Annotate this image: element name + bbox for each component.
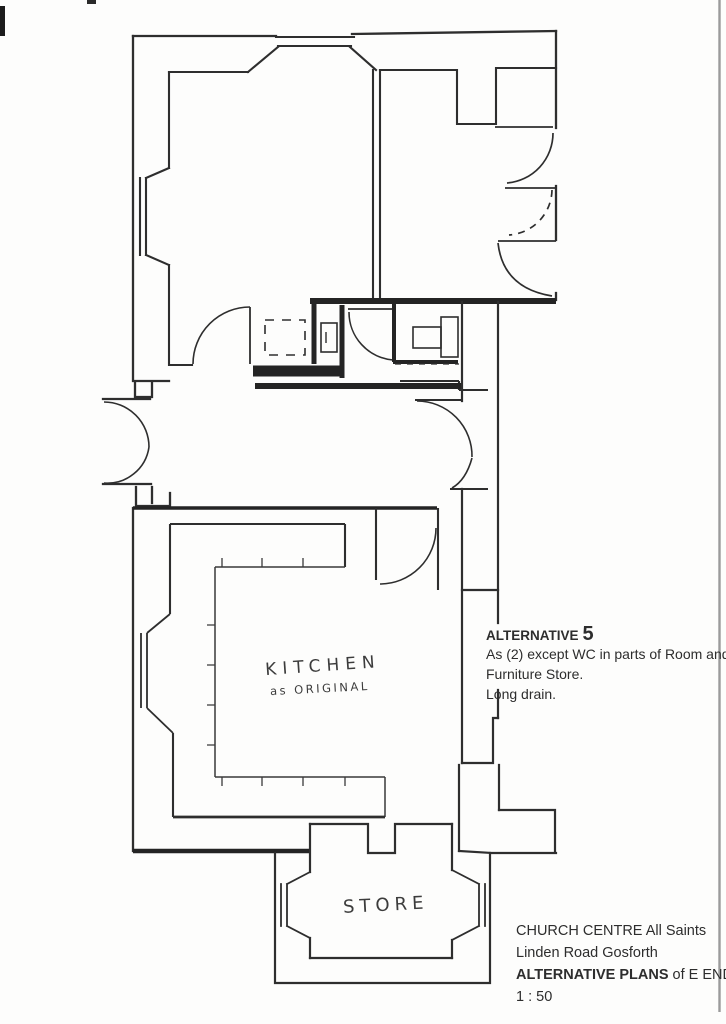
wall xyxy=(133,36,169,381)
alternative-heading-word: ALTERNATIVE xyxy=(486,628,579,643)
wall-chimney-recess xyxy=(380,68,556,124)
door-swing-arc xyxy=(193,307,250,364)
east-wall xyxy=(459,302,556,853)
wc-pan xyxy=(413,327,441,348)
door-jamb xyxy=(103,399,151,484)
wall xyxy=(170,524,345,567)
corridor-wc xyxy=(193,301,556,390)
door-swing-arc xyxy=(380,528,436,584)
scanned-floor-plan-sheet: ALTERNATIVE5 As (2) except WC in parts o… xyxy=(0,0,726,1024)
alternative-note-line: As (2) except WC in parts of Room and xyxy=(486,646,726,662)
window-left xyxy=(281,872,310,938)
double-door-arc xyxy=(452,458,472,488)
double-door-arc xyxy=(104,447,149,483)
window-splay xyxy=(248,47,376,72)
doors-top-right xyxy=(495,127,556,296)
scan-mark xyxy=(87,0,96,4)
top-room-walls xyxy=(140,37,556,365)
title-block-line3: ALTERNATIVE PLANS of E END xyxy=(516,967,726,983)
fixture-dashed xyxy=(265,320,305,355)
wall xyxy=(352,31,556,34)
double-door-arc xyxy=(417,401,472,457)
floor-plan-drawing: ALTERNATIVE5 As (2) except WC in parts o… xyxy=(0,0,726,1024)
wall-divider xyxy=(373,70,380,298)
door-swing-arc xyxy=(498,243,552,296)
title-block-line2: Linden Road Gosforth xyxy=(516,945,658,961)
wall-pier xyxy=(136,487,170,508)
wc-pan xyxy=(321,323,337,352)
window-left xyxy=(140,168,169,265)
annotation-texts: ALTERNATIVE5 As (2) except WC in parts o… xyxy=(265,623,726,1005)
kitchen-room xyxy=(133,508,438,851)
title-block-line3-bold: ALTERNATIVE PLANS xyxy=(516,967,669,983)
kitchen-label: KITCHEN xyxy=(265,652,382,680)
alternative-note-line: Long drain. xyxy=(486,686,556,702)
door-swing-arc xyxy=(507,133,553,183)
title-block-scale: 1 : 50 xyxy=(516,989,552,1005)
title-block-line1: CHURCH CENTRE All Saints xyxy=(516,923,706,939)
cross-passage xyxy=(104,386,488,489)
wall xyxy=(459,765,499,851)
alternative-heading-number: 5 xyxy=(583,623,594,645)
window-left xyxy=(141,614,173,733)
alternative-note-line: Furniture Store. xyxy=(486,666,583,682)
outer-walls xyxy=(103,31,556,851)
wall xyxy=(169,72,192,365)
scan-mark xyxy=(0,6,5,36)
kitchen-sub-label: as ORIGINAL xyxy=(270,679,370,698)
alternative-note-heading: ALTERNATIVE5 xyxy=(486,623,594,645)
wall-thick xyxy=(393,303,458,362)
door-swing-arc xyxy=(349,312,393,360)
scan-artifacts xyxy=(0,0,720,1012)
wall xyxy=(170,524,173,817)
door-swing-arc-dashed xyxy=(509,190,552,235)
wall-pier xyxy=(135,383,152,397)
wall xyxy=(462,718,498,763)
wall xyxy=(459,810,556,853)
wc-cistern xyxy=(441,317,458,357)
wall-notch xyxy=(310,824,452,853)
window-right xyxy=(452,870,485,940)
store-label: STORE xyxy=(343,892,429,917)
double-door-arc xyxy=(104,402,149,447)
title-block-line3-rest: of E END xyxy=(669,967,726,983)
window-top xyxy=(276,37,354,46)
